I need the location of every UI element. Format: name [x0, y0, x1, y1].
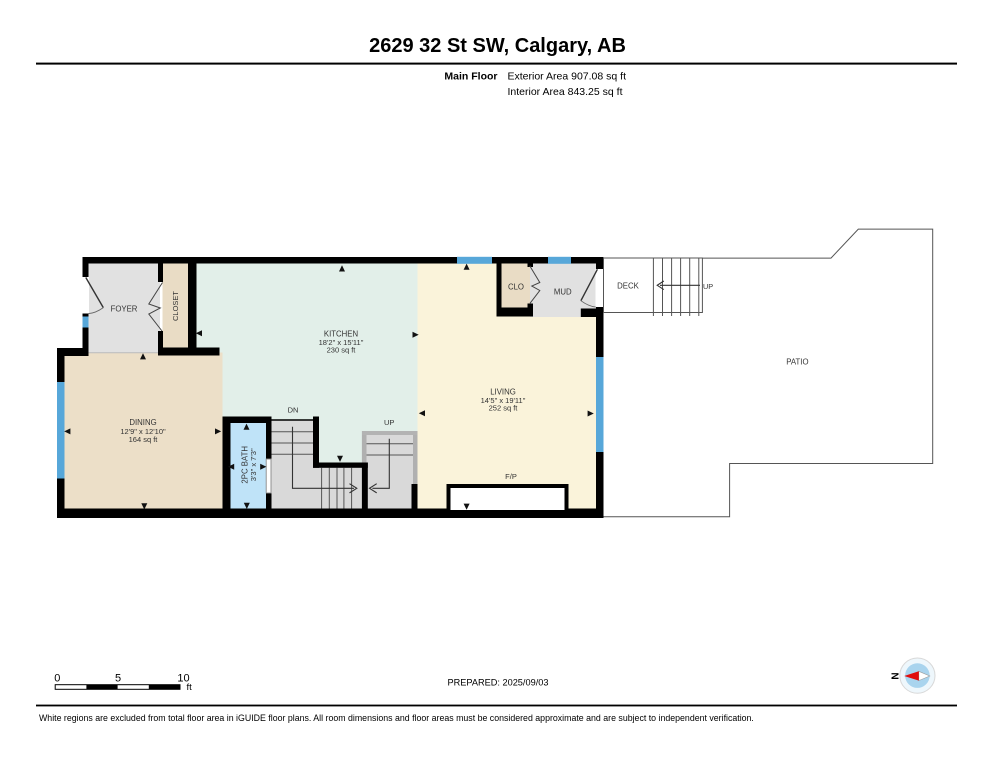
svg-text:ft: ft: [187, 682, 193, 693]
svg-text:DECK: DECK: [617, 281, 639, 290]
svg-text:2629 32 St SW, Calgary, AB: 2629 32 St SW, Calgary, AB: [369, 35, 626, 57]
svg-text:164 sq ft: 164 sq ft: [129, 435, 159, 444]
svg-text:PREPARED: 2025/09/03: PREPARED: 2025/09/03: [448, 678, 549, 688]
svg-text:CLOSET: CLOSET: [171, 291, 180, 321]
svg-text:F/P: F/P: [505, 472, 517, 481]
svg-text:230 sq ft: 230 sq ft: [327, 346, 357, 355]
svg-text:DN: DN: [288, 406, 299, 415]
svg-text:N: N: [891, 672, 902, 679]
svg-text:252 sq ft: 252 sq ft: [489, 404, 519, 413]
svg-text:CLO: CLO: [508, 283, 524, 292]
svg-text:MUD: MUD: [554, 288, 572, 297]
svg-text:5: 5: [115, 673, 121, 685]
svg-text:FOYER: FOYER: [111, 305, 138, 314]
svg-text:DINING: DINING: [129, 418, 156, 427]
svg-text:UP: UP: [703, 282, 713, 291]
svg-text:PATIO: PATIO: [786, 358, 808, 367]
svg-text:White regions are excluded fro: White regions are excluded from total fl…: [39, 713, 754, 723]
svg-text:Main Floor: Main Floor: [444, 71, 497, 83]
svg-text:3'3" x 7'3": 3'3" x 7'3": [249, 448, 258, 481]
svg-text:0: 0: [54, 673, 60, 685]
svg-text:UP: UP: [384, 418, 394, 427]
svg-text:Interior Area 843.25 sq ft: Interior Area 843.25 sq ft: [508, 86, 623, 98]
svg-text:Exterior Area 907.08 sq ft: Exterior Area 907.08 sq ft: [508, 71, 627, 83]
